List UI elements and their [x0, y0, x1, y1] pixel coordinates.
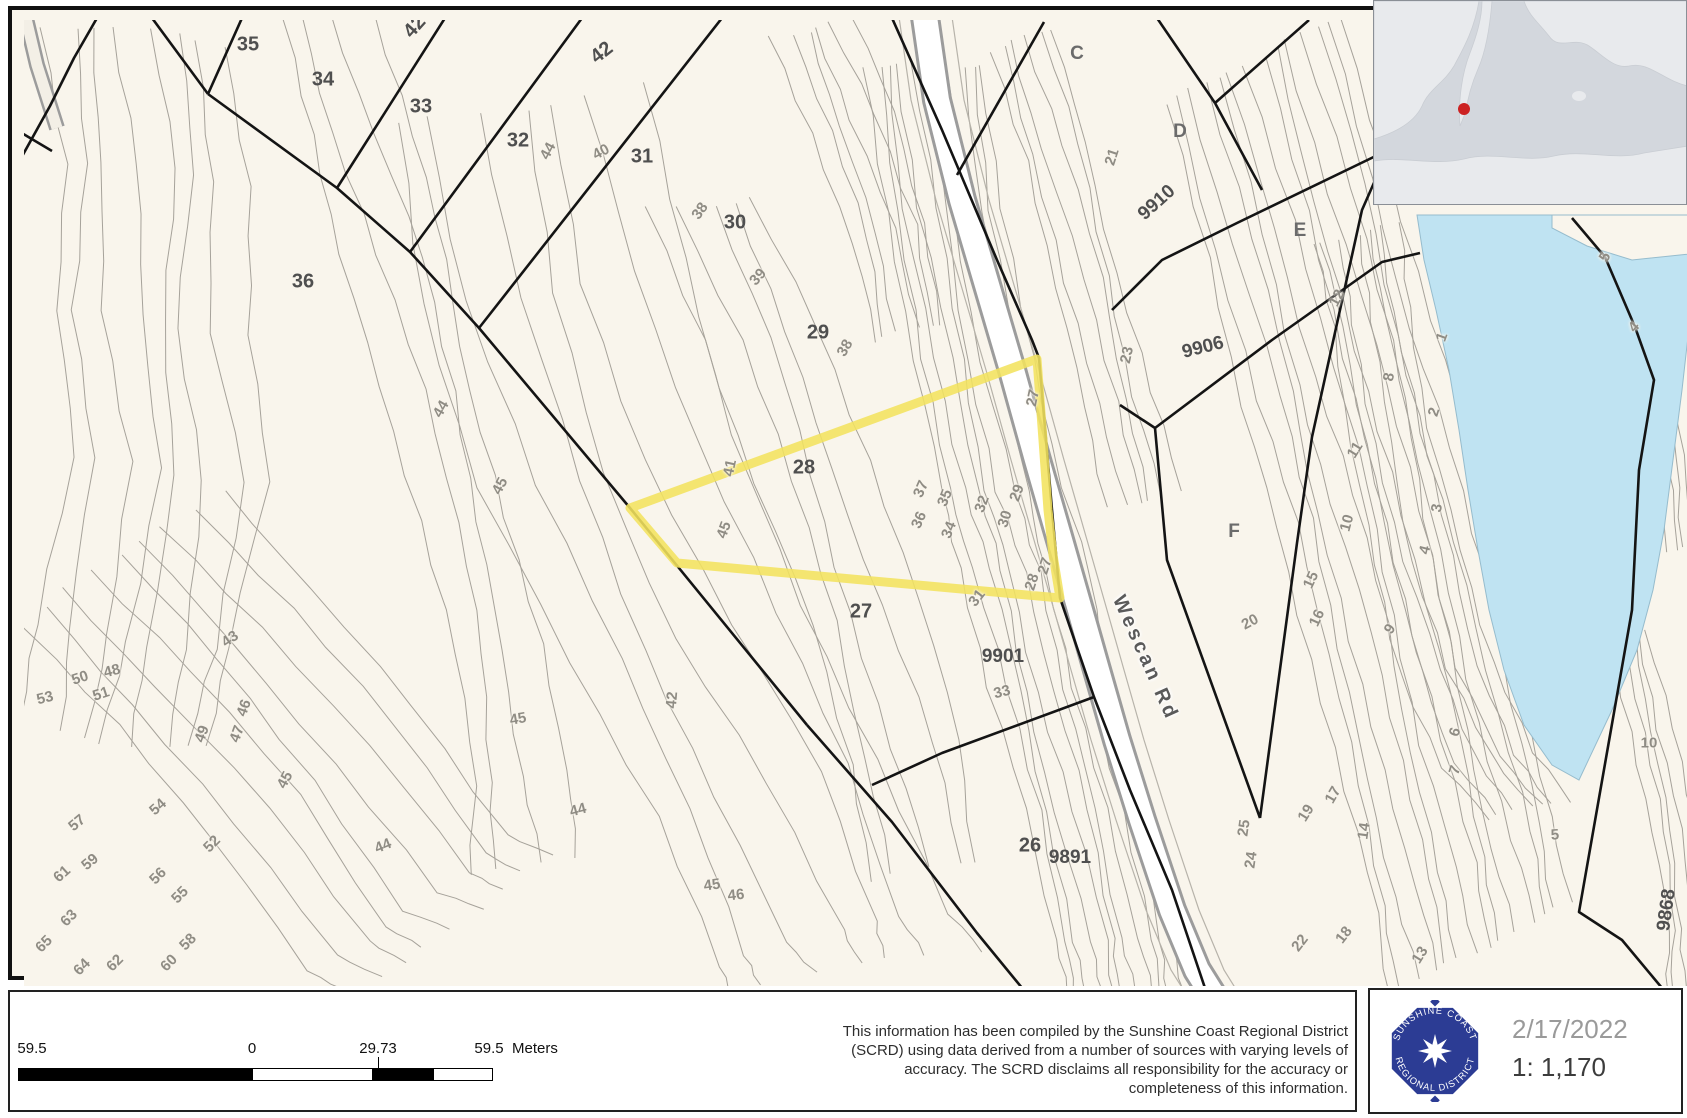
- contour-elevation-label: 24: [1241, 851, 1260, 870]
- contour-elevation-label: 8: [1380, 371, 1398, 382]
- contour-elevation-label: 14: [1354, 822, 1373, 841]
- contour-elevation-label: 65: [32, 932, 56, 956]
- contour-elevation-label: 46: [727, 886, 745, 905]
- inset-landmass: [1524, 1, 1687, 86]
- scalebar-segment-black-2: [373, 1068, 433, 1081]
- plan-number-label: 9910: [1134, 181, 1180, 226]
- contour-elevation-label: 10: [1641, 735, 1658, 752]
- lot-number-label: 33: [410, 96, 432, 119]
- contour-elevation-label: 35: [934, 487, 956, 509]
- scalebar-mid-value: 29.73: [359, 1040, 397, 1057]
- contour-elevation-label: 38: [833, 337, 856, 360]
- overview-inset-map[interactable]: [1373, 0, 1687, 205]
- scrd-logo-icon: SUNSHINE COAST REGIONAL DISTRICT: [1384, 1000, 1486, 1102]
- contour-elevation-label: 64: [70, 955, 94, 979]
- contour-elevation-label: 5: [1550, 826, 1560, 844]
- contour-elevation-label: 25: [1234, 819, 1253, 838]
- contour-elevation-label: 45: [713, 519, 735, 540]
- contour-elevation-label: 45: [489, 475, 512, 498]
- contour-elevation-label: 27: [1034, 555, 1055, 576]
- lot-number-label: 31: [631, 146, 653, 169]
- contour-elevation-label: 51: [90, 683, 111, 704]
- lot-number-label: 42: [399, 20, 431, 43]
- contour-elevation-label: 45: [274, 769, 297, 792]
- contour-elevation-label: 2: [1425, 405, 1444, 418]
- block-letter-label: C: [1070, 43, 1084, 65]
- contour-elevation-label: 39: [746, 265, 770, 289]
- contour-elevation-label: 1: [1433, 330, 1452, 344]
- contour-elevation-label: 45: [703, 875, 722, 894]
- contour-elevation-label: 28: [1021, 571, 1042, 592]
- lot-number-label: 29: [807, 322, 829, 345]
- block-letter-label: D: [1173, 121, 1187, 143]
- plan-number-label: 9901: [982, 646, 1024, 668]
- contour-elevation-label: 49: [191, 723, 213, 744]
- map-date: 2/17/2022: [1512, 1014, 1628, 1045]
- contour-elevation-label: 16: [1306, 607, 1328, 629]
- contour-elevation-label: 44: [537, 140, 560, 163]
- contour-elevation-label: 53: [35, 688, 55, 709]
- map-page: 3534333231302928272636424299109906990198…: [0, 0, 1687, 1118]
- contour-elevation-label: 54: [146, 795, 170, 819]
- logo-star-icon: [1418, 1034, 1452, 1068]
- contour-elevation-label: 47: [226, 723, 248, 744]
- contour-elevation-label: 59: [78, 850, 102, 874]
- contour-elevation-label: 52: [200, 832, 224, 856]
- contour-elevation-label: 23: [1117, 345, 1137, 365]
- contour-elevation-label: 20: [1239, 611, 1262, 634]
- scalebar-left-value: 59.5: [17, 1040, 46, 1057]
- contour-elevation-label: 31: [965, 586, 989, 610]
- contour-elevation-label: 32: [971, 493, 993, 514]
- contour-elevation-label: 4: [1416, 544, 1435, 556]
- contour-elevation-label: 56: [146, 864, 170, 888]
- contour-elevation-label: 12: [1326, 287, 1349, 310]
- contour-elevation-label: 15: [1300, 569, 1322, 591]
- contour-elevation-label: 58: [176, 930, 200, 954]
- lot-number-label: 28: [793, 457, 815, 480]
- contour-elevation-label: 13: [1408, 943, 1431, 966]
- lot-number-label: 42: [586, 37, 618, 69]
- contour-elevation-label: 10: [1337, 513, 1358, 534]
- contour-elevation-label: 19: [1294, 801, 1317, 824]
- disclaimer-text: This information has been compiled by th…: [728, 1022, 1348, 1098]
- contour-elevation-label: 11: [1344, 439, 1367, 461]
- contour-elevation-label: 44: [568, 800, 589, 821]
- contour-elevation-label: 17: [1321, 784, 1344, 807]
- contour-elevation-label: 45: [508, 709, 527, 729]
- lot-number-label: 27: [850, 601, 872, 624]
- contour-elevation-label: 41: [720, 458, 740, 478]
- contour-elevation-label: 60: [157, 951, 181, 975]
- contour-elevation-label: 57: [65, 811, 89, 835]
- contour-elevation-label: 9: [1381, 621, 1400, 638]
- contour-elevation-label: 30: [994, 508, 1015, 529]
- contour-elevation-label: 27: [1023, 388, 1043, 408]
- contour-elevation-label: 36: [908, 509, 930, 531]
- contour-elevation-label: 42: [663, 691, 681, 709]
- contour-elevation-label: 50: [69, 667, 90, 688]
- scalebar-unit: Meters: [512, 1040, 558, 1057]
- disclaimer-line: This information has been compiled by th…: [728, 1022, 1348, 1041]
- location-marker-dot: [1458, 103, 1470, 115]
- contour-elevation-label: 44: [372, 835, 394, 857]
- block-letter-label: E: [1294, 220, 1307, 242]
- contour-elevation-label: 44: [429, 398, 452, 421]
- inset-canvas: [1374, 1, 1687, 205]
- disclaimer-line: accuracy. The SCRD disclaims all respons…: [728, 1060, 1348, 1079]
- lot-number-label: 34: [312, 69, 334, 92]
- scalebar-zero-value: 0: [248, 1040, 256, 1057]
- contour-elevation-label: 55: [168, 883, 192, 907]
- contour-elevation-label: 6: [1446, 725, 1465, 738]
- contour-elevation-label: 4: [1625, 318, 1643, 336]
- lot-number-label: 32: [507, 130, 529, 153]
- contour-elevation-label: 61: [50, 862, 74, 886]
- contour-elevation-label: 48: [102, 661, 123, 682]
- disclaimer-line: completeness of this information.: [728, 1079, 1348, 1098]
- lot-number-label: 26: [1019, 835, 1041, 858]
- lot-number-label: 36: [292, 271, 314, 294]
- contour-elevation-label: 18: [1332, 923, 1356, 947]
- scalebar-right-value: 59.5: [474, 1040, 503, 1057]
- scalebar-segment-white-2: [433, 1068, 493, 1081]
- contour-elevation-label: 40: [590, 141, 613, 164]
- contour-elevation-label: 37: [910, 478, 932, 500]
- contour-elevation-label: 22: [1288, 931, 1312, 955]
- inset-landmass: [1374, 146, 1687, 205]
- contour-elevation-label: 63: [57, 906, 81, 930]
- disclaimer-line: (SCRD) using data derived from a number …: [728, 1041, 1348, 1060]
- lot-number-label: 30: [724, 212, 746, 235]
- scalebar-segment-white-1: [252, 1068, 373, 1081]
- contour-elevation-label: 7: [1446, 763, 1465, 776]
- contour-elevation-label: 34: [938, 519, 960, 541]
- contour-elevation-label: 38: [688, 199, 711, 222]
- contour-elevation-label: 43: [218, 627, 241, 650]
- contour-elevation-label: 3: [1428, 503, 1446, 514]
- scalebar-segment-black-1: [18, 1068, 252, 1081]
- contour-elevation-label: 5: [1596, 249, 1615, 265]
- plan-number-label: 9868: [1653, 888, 1681, 933]
- lot-number-label: 35: [237, 34, 259, 57]
- block-letter-label: F: [1228, 521, 1240, 543]
- contour-elevation-label: 62: [103, 951, 127, 975]
- contour-elevation-label: 33: [992, 682, 1012, 703]
- road-name-label: Wescan Rd: [1107, 592, 1183, 724]
- plan-number-label: 9906: [1180, 332, 1226, 364]
- contour-elevation-label: 46: [233, 697, 255, 718]
- contour-elevation-label: 29: [1006, 482, 1028, 503]
- contour-elevation-label: 21: [1101, 146, 1122, 167]
- map-scale-ratio: 1: 1,170: [1512, 1052, 1606, 1083]
- plan-number-label: 9891: [1049, 847, 1091, 869]
